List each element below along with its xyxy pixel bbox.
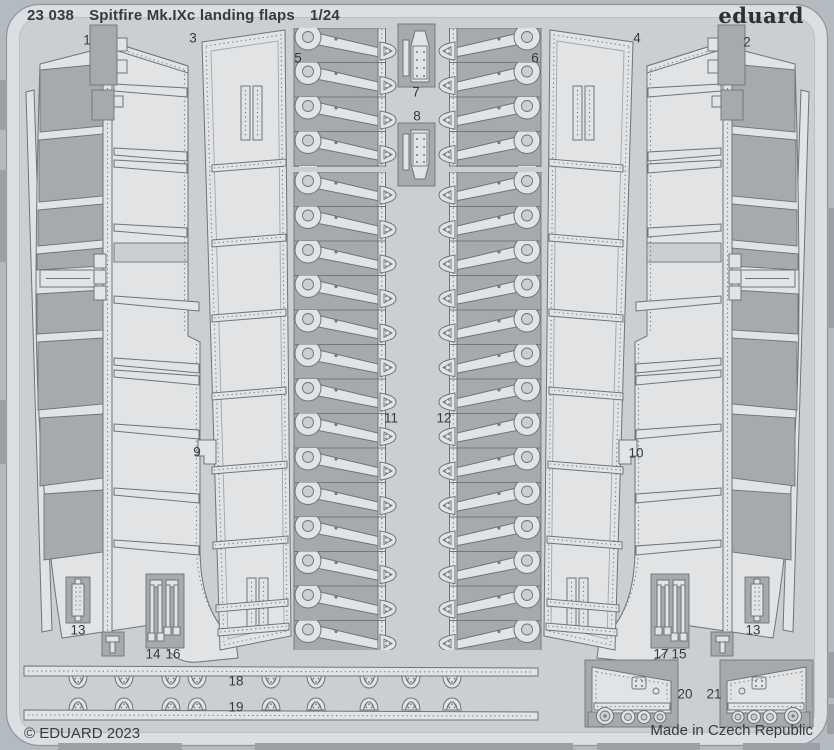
- part-7-bracket: [398, 24, 435, 87]
- part-14-16-plate: [146, 574, 184, 648]
- copyright-notice: © EDUARD 2023: [24, 725, 140, 742]
- part-label-13-left: 13: [70, 623, 85, 638]
- part-label-15: 15: [671, 647, 686, 662]
- part-label-8: 8: [413, 109, 421, 124]
- part-20-bracket-plate: [585, 660, 678, 727]
- part-label-7: 7: [412, 85, 420, 100]
- part-label-16: 16: [165, 647, 180, 662]
- sheet-scale: 1/24: [310, 7, 340, 24]
- part-8-bracket: [398, 123, 435, 186]
- catalog-number: 23 038: [27, 7, 74, 24]
- part-label-13-right: 13: [745, 623, 760, 638]
- eduard-pe-fret-sheet: 23 038Spitfire Mk.IXc landing flaps1/24 …: [0, 0, 834, 750]
- part-label-2: 2: [743, 35, 751, 50]
- part-5-11-hinge-chain: [291, 28, 397, 650]
- part-label-1: 1: [83, 33, 91, 48]
- part-label-3: 3: [189, 31, 197, 46]
- part-label-6: 6: [531, 51, 539, 66]
- part-label-21: 21: [706, 687, 721, 702]
- part-label-9: 9: [193, 445, 201, 460]
- part-21-bracket-plate: [720, 660, 813, 727]
- part-13-plate: [66, 577, 90, 623]
- sheet-title: Spitfire Mk.IXc landing flaps: [89, 7, 295, 24]
- part-label-12: 12: [436, 411, 451, 426]
- eduard-brand-logo: eduard: [718, 3, 804, 28]
- part-label-20: 20: [677, 687, 692, 702]
- part-label-17: 17: [653, 647, 668, 662]
- part-label-4: 4: [633, 31, 641, 46]
- made-in-label: Made in Czech Republic: [650, 722, 813, 739]
- part-label-19: 19: [228, 700, 243, 715]
- part-label-11: 11: [384, 411, 398, 426]
- part-label-5: 5: [294, 51, 302, 66]
- part-label-14: 14: [145, 647, 160, 662]
- small-plate: [102, 632, 124, 656]
- sheet-header: 23 038Spitfire Mk.IXc landing flaps1/24: [27, 7, 355, 24]
- part-label-18: 18: [228, 674, 243, 689]
- part-label-10: 10: [628, 446, 643, 461]
